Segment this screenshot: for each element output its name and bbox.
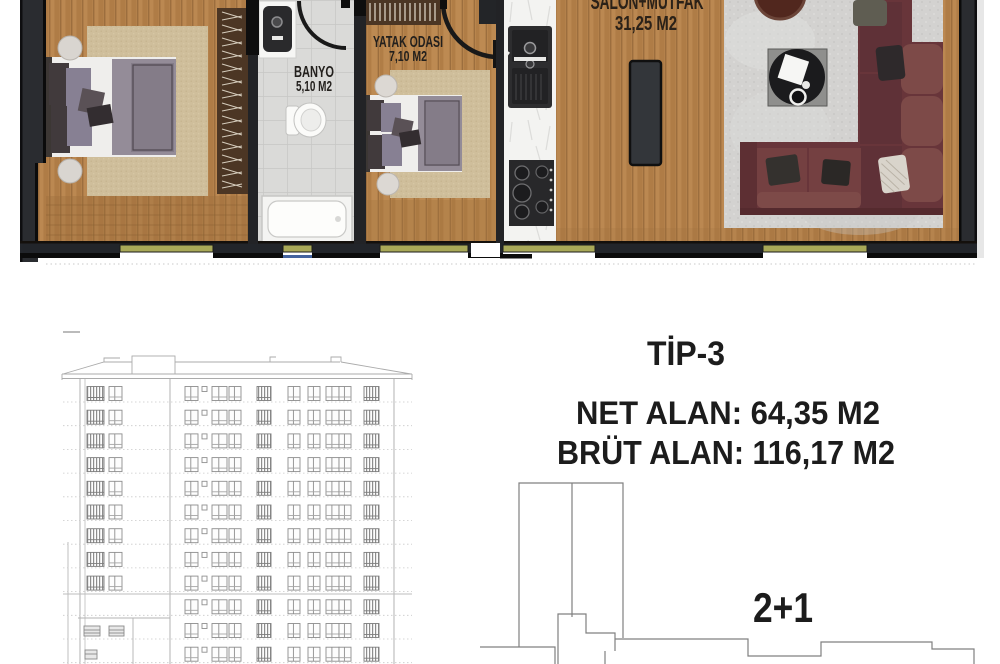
svg-text:5,10 M2: 5,10 M2 bbox=[296, 78, 332, 95]
svg-text:2+1: 2+1 bbox=[753, 584, 813, 631]
svg-text:TİP-3: TİP-3 bbox=[647, 335, 725, 373]
svg-text:BRÜT ALAN: 116,17 M2: BRÜT ALAN: 116,17 M2 bbox=[557, 434, 895, 471]
svg-text:NET ALAN: 64,35 M2: NET ALAN: 64,35 M2 bbox=[576, 395, 880, 431]
svg-text:31,25 M2: 31,25 M2 bbox=[615, 13, 677, 35]
svg-text:SALON+MUTFAK: SALON+MUTFAK bbox=[591, 0, 704, 14]
svg-text:7,10 M2: 7,10 M2 bbox=[389, 48, 427, 65]
